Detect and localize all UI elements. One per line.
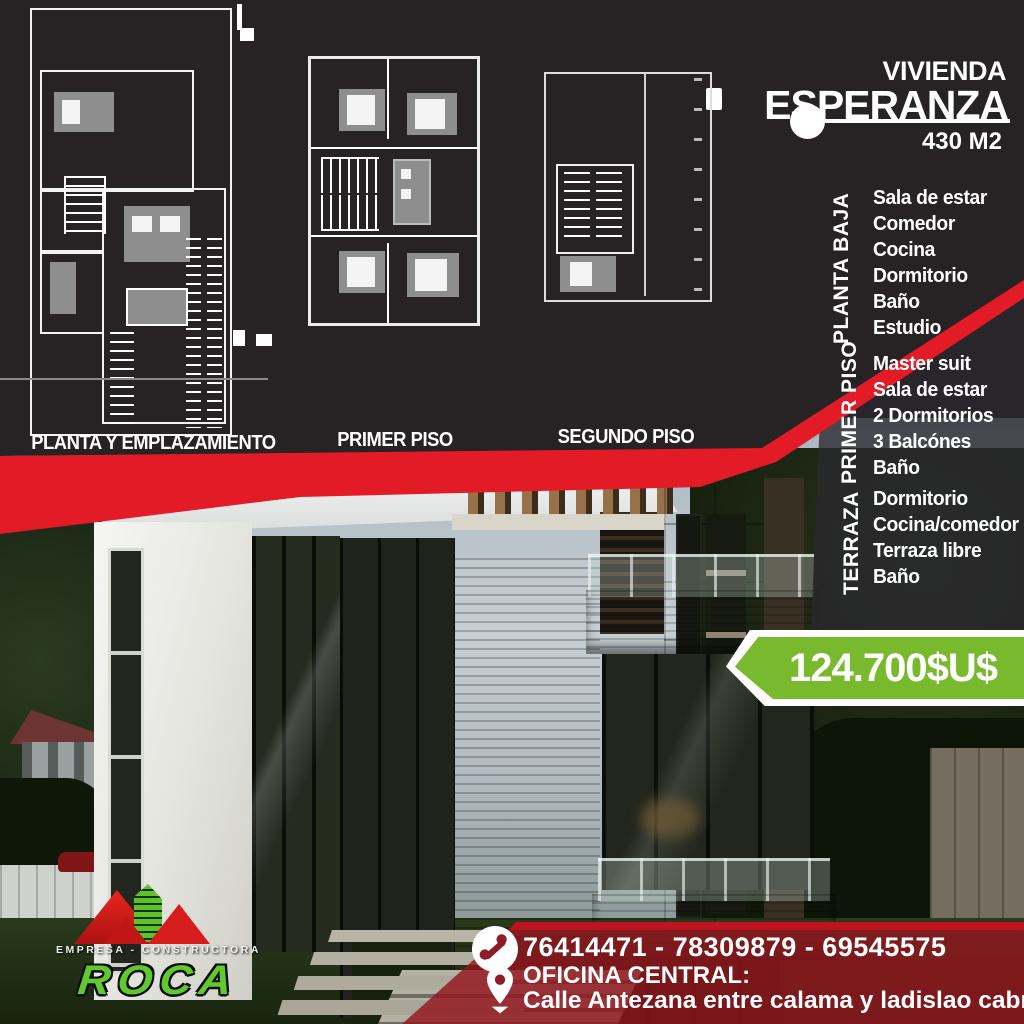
plan-furniture <box>124 206 190 262</box>
plan-furniture <box>393 159 431 225</box>
interior-glow <box>640 798 700 838</box>
title-rule <box>808 119 1010 123</box>
office-label: OFICINA CENTRAL: <box>523 962 750 990</box>
plan-bed <box>347 257 375 287</box>
concrete-wall-right <box>930 748 1024 933</box>
plan-marker-icon <box>240 28 254 41</box>
plan-furniture <box>62 100 80 124</box>
section-items-primer-piso: Master suit Sala de estar 2 Dormitorios … <box>873 351 993 481</box>
plan-furniture <box>401 169 411 179</box>
plan-wall <box>311 147 477 149</box>
path-stone-1 <box>328 930 482 942</box>
plan-stairs <box>186 238 201 428</box>
title-area: 430 M2 <box>922 128 1002 156</box>
location-pin-icon <box>480 964 520 1016</box>
plan-label-second: SEGUNDO PISO <box>558 426 687 449</box>
plan-wall <box>387 59 389 139</box>
section-items-terraza: Dormitorio Cocina/comedor Terraza libre … <box>873 486 1019 590</box>
plan-furniture <box>132 216 152 232</box>
plan-label-first: PRIMER PISO <box>335 429 455 452</box>
plan-furniture <box>126 288 188 326</box>
price-tag-green: 124.700$U$ <box>732 637 1024 699</box>
section-label-primer-piso: PRIMER PISO <box>838 350 862 484</box>
plan-stairs <box>64 176 106 234</box>
plan-marker-icon <box>256 334 272 346</box>
plan-stairs <box>564 172 590 242</box>
plan-stairs <box>596 172 622 242</box>
site-street-line <box>0 378 268 380</box>
plan-marker-icon <box>233 330 245 346</box>
phone-numbers: 76414471 - 78309879 - 69545575 <box>523 932 946 963</box>
plan-wall-ticks <box>694 78 702 292</box>
logo-tagline: EMPRESA - CONSTRUCTORA <box>46 944 271 956</box>
price-value: 124.700$U$ <box>759 646 997 691</box>
plan-bed <box>570 262 592 286</box>
office-address: Calle Antezana entre calama y ladislao c… <box>523 987 1024 1015</box>
logo-name: ROCA <box>43 956 273 1004</box>
plan-first-floor <box>308 56 480 326</box>
plan-site <box>30 8 232 436</box>
section-label-terraza: TERRAZA <box>840 488 864 598</box>
poster: PLANTA Y EMPLAZAMIENTO PRIMER PISO SEGUN… <box>0 0 1024 1024</box>
price-tag: 124.700$U$ <box>726 630 1024 706</box>
plan-wall <box>387 243 389 323</box>
section-items-planta-baja: Sala de estar Comedor Cocina Dormitorio … <box>873 185 987 341</box>
plan-stairs <box>110 332 134 428</box>
plan-second-floor <box>544 72 714 304</box>
pergola-beam <box>452 514 666 530</box>
plan-stairs <box>321 157 379 193</box>
plan-furniture <box>50 262 76 314</box>
plan-furniture <box>401 189 411 199</box>
plan-label-site: PLANTA Y EMPLAZAMIENTO <box>31 432 243 455</box>
plan-wall <box>644 74 646 296</box>
plan-bed <box>415 99 445 129</box>
plan-bed <box>415 259 447 291</box>
plan-wall <box>311 235 477 237</box>
plan-stairs <box>321 195 379 231</box>
section-label-planta-baja: PLANTA BAJA <box>830 188 854 348</box>
plan-stairs <box>207 238 222 428</box>
roca-logo: EMPRESA - CONSTRUCTORA ROCA <box>46 884 271 1016</box>
plan-furniture <box>160 216 180 232</box>
plan-marker-icon <box>237 4 242 30</box>
plan-bed <box>347 95 375 125</box>
